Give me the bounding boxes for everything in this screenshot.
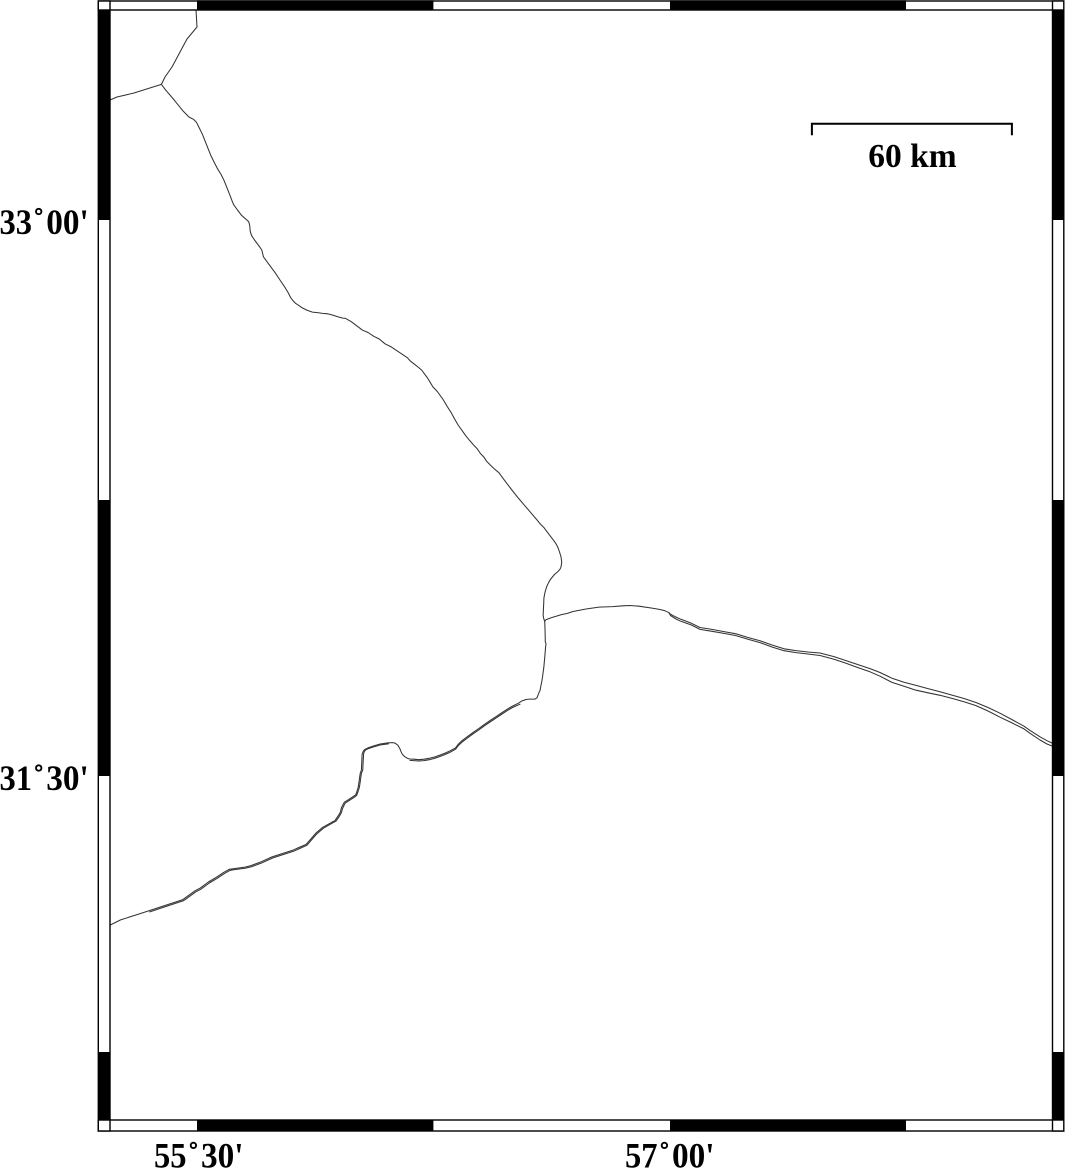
svg-text:31: 31 [0, 758, 32, 798]
svg-text:00': 00' [672, 1136, 715, 1169]
svg-text:57: 57 [625, 1136, 658, 1169]
svg-text:33: 33 [0, 202, 32, 242]
svg-text:60 km: 60 km [868, 138, 956, 175]
svg-text:00': 00' [46, 202, 89, 242]
svg-text:30': 30' [201, 1136, 244, 1169]
svg-text:30': 30' [46, 758, 89, 798]
svg-text:55: 55 [154, 1136, 187, 1169]
